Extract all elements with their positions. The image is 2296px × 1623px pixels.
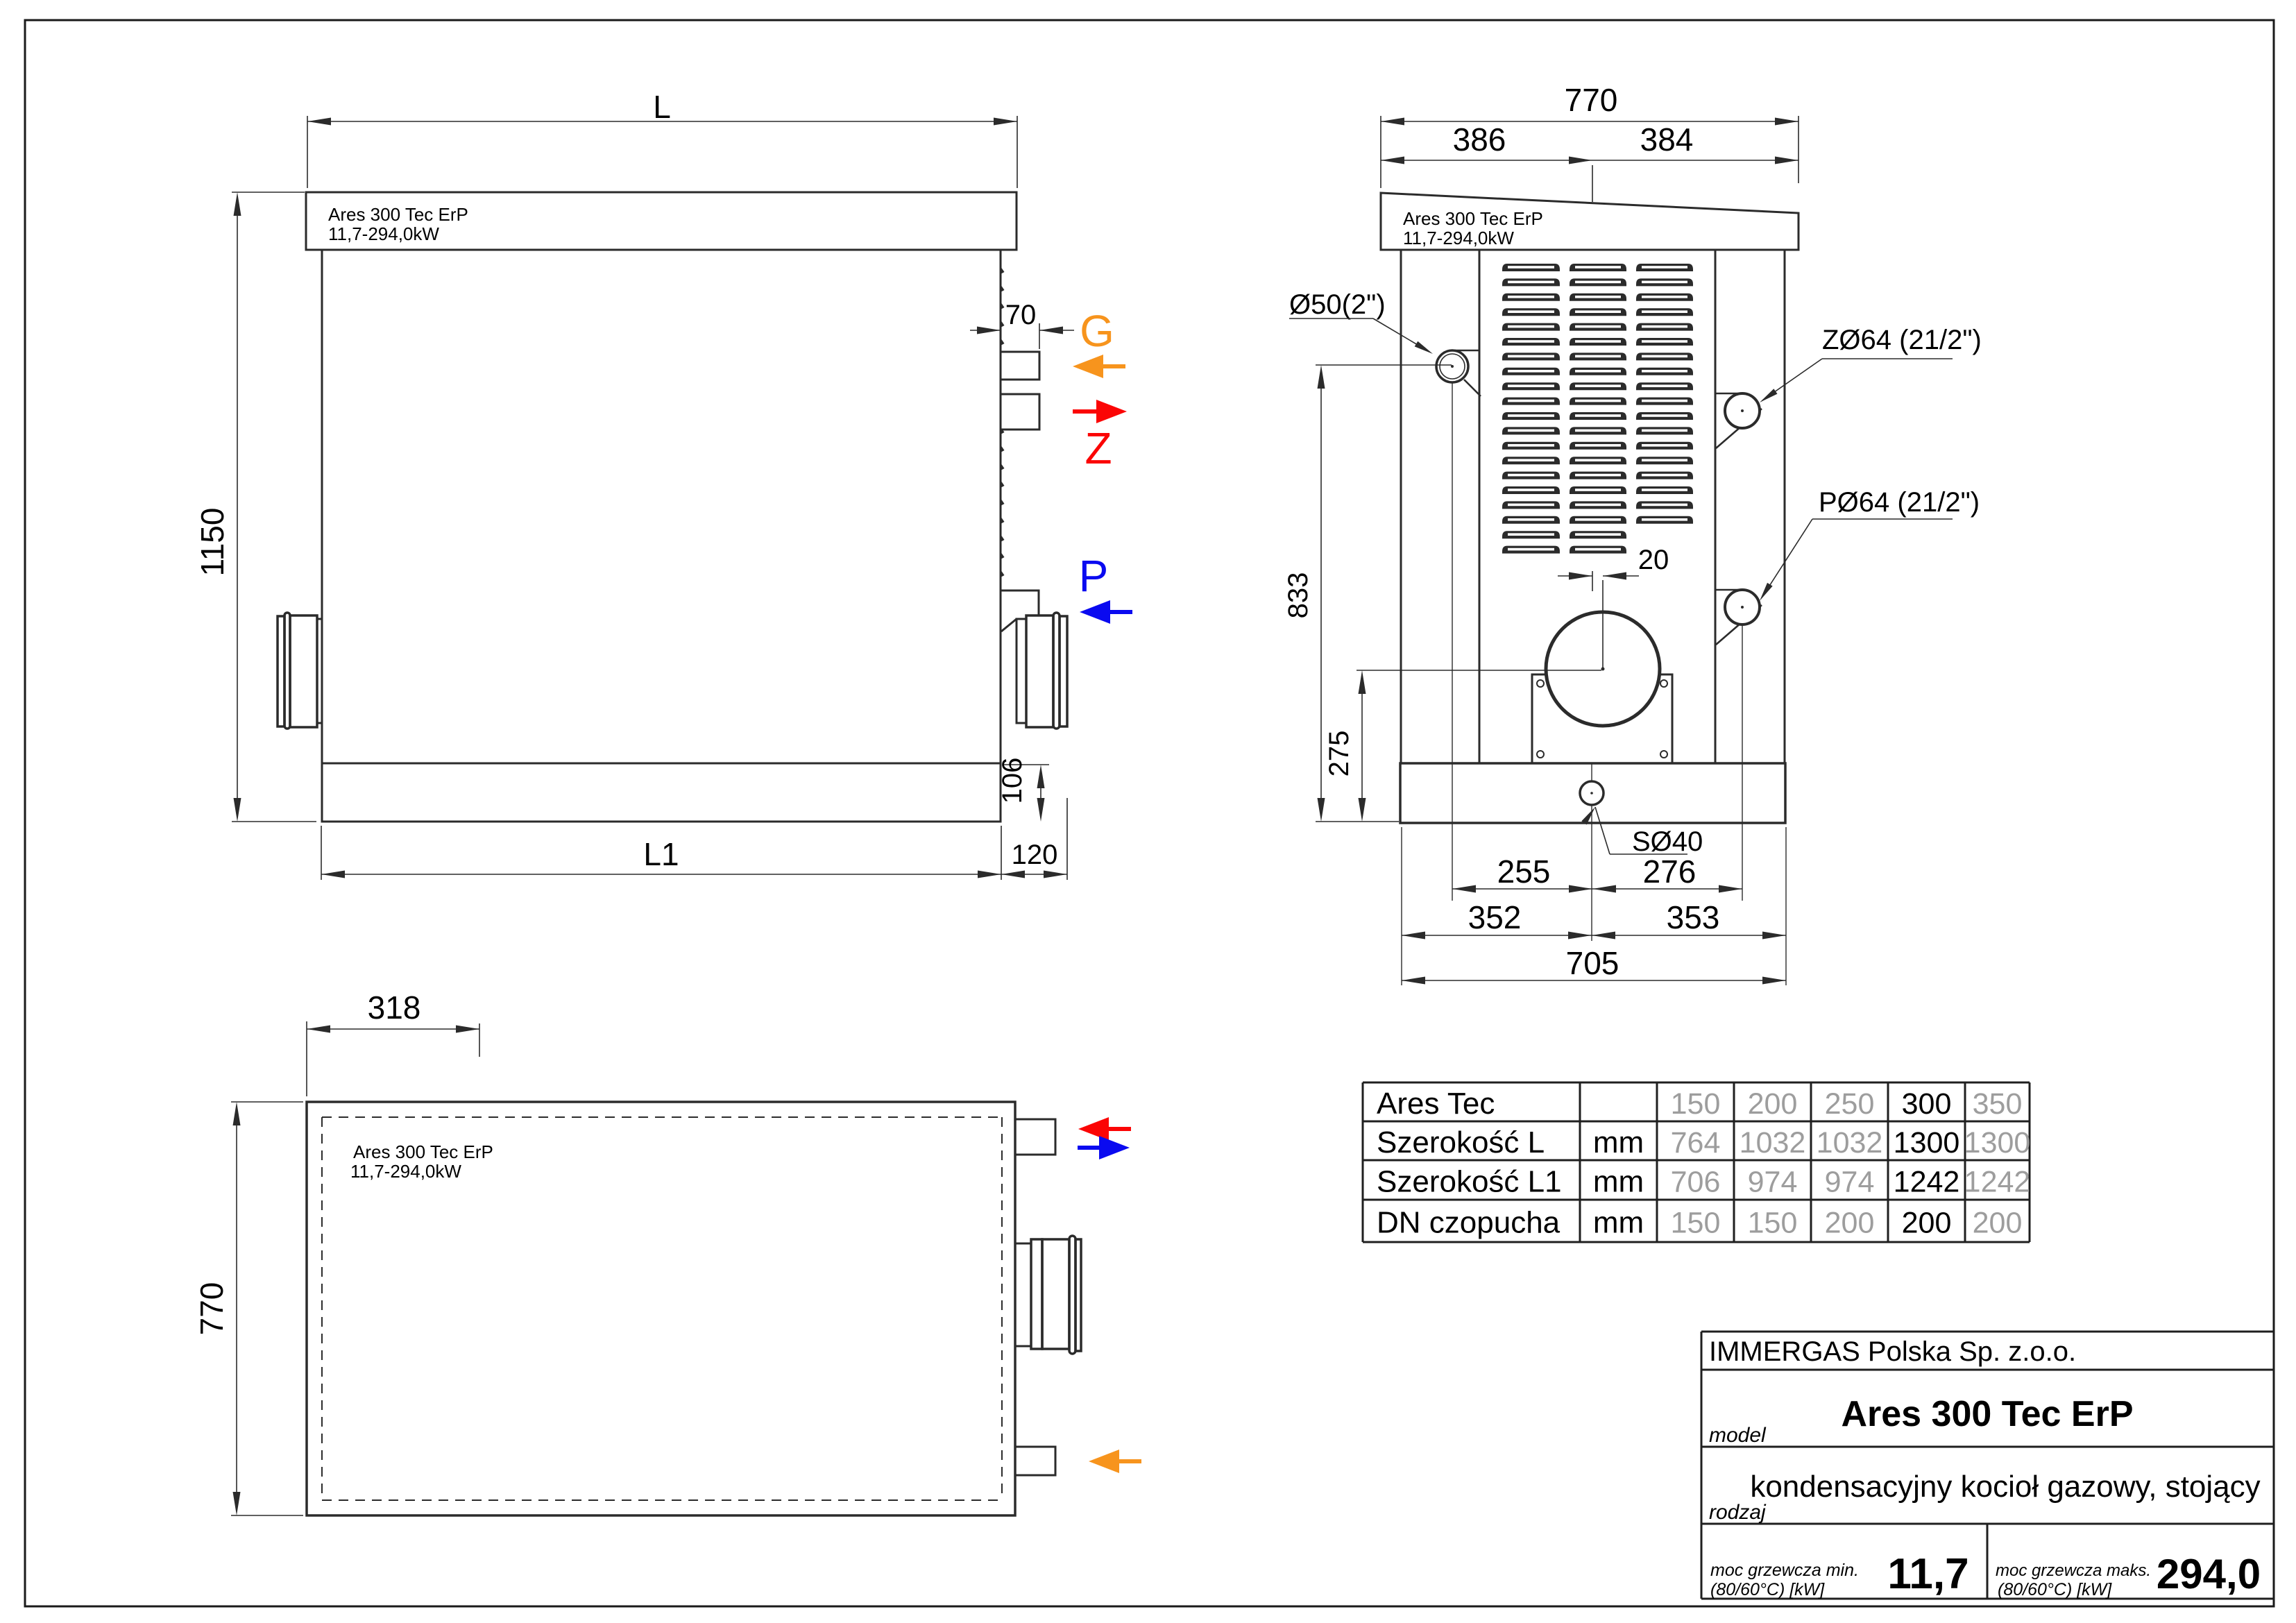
svg-text:Ares 300 Tec ErP: Ares 300 Tec ErP	[328, 204, 468, 225]
svg-text:386: 386	[1453, 121, 1506, 158]
svg-text:350: 350	[1973, 1087, 2023, 1121]
svg-text:106: 106	[997, 758, 1028, 804]
svg-text:352: 352	[1468, 899, 1522, 935]
svg-text:SØ40: SØ40	[1632, 826, 1703, 857]
svg-text:Ø50(2"): Ø50(2")	[1289, 289, 1386, 320]
svg-text:770: 770	[1565, 82, 1618, 118]
svg-text:150: 150	[1748, 1207, 1798, 1240]
svg-text:G: G	[1080, 306, 1114, 356]
svg-text:1242: 1242	[1964, 1166, 2031, 1199]
svg-text:833: 833	[1283, 572, 1313, 619]
svg-text:1300: 1300	[1964, 1126, 2031, 1159]
svg-text:mm: mm	[1593, 1165, 1644, 1199]
svg-text:150: 150	[1671, 1087, 1721, 1121]
svg-text:P: P	[1079, 551, 1109, 601]
svg-text:Szerokość L: Szerokość L	[1377, 1125, 1545, 1159]
svg-text:L1: L1	[643, 836, 679, 872]
svg-text:L: L	[653, 89, 671, 125]
svg-text:276: 276	[1643, 853, 1697, 890]
svg-text:1150: 1150	[194, 508, 230, 577]
svg-text:11,7-294,0kW: 11,7-294,0kW	[350, 1161, 461, 1182]
svg-text:275: 275	[1324, 731, 1354, 777]
svg-text:200: 200	[1825, 1207, 1875, 1240]
svg-text:70: 70	[1005, 300, 1037, 330]
svg-text:11,7-294,0kW: 11,7-294,0kW	[328, 223, 439, 244]
svg-text:Ares Tec: Ares Tec	[1377, 1087, 1495, 1121]
svg-text:200: 200	[1748, 1087, 1798, 1121]
svg-text:384: 384	[1640, 121, 1694, 158]
svg-text:120: 120	[1012, 840, 1058, 870]
svg-text:706: 706	[1671, 1166, 1721, 1199]
svg-text:moc grzewcza maks.: moc grzewcza maks.	[1996, 1561, 2151, 1580]
svg-text:300: 300	[1902, 1087, 1952, 1121]
svg-text:705: 705	[1566, 945, 1619, 981]
svg-text:mm: mm	[1593, 1125, 1644, 1159]
svg-text:250: 250	[1825, 1087, 1875, 1121]
svg-text:764: 764	[1671, 1126, 1721, 1159]
svg-text:Z: Z	[1085, 423, 1112, 473]
svg-text:974: 974	[1825, 1166, 1875, 1199]
svg-text:150: 150	[1671, 1207, 1721, 1240]
svg-text:IMMERGAS Polska Sp. z.o.o.: IMMERGAS Polska Sp. z.o.o.	[1709, 1336, 2076, 1367]
svg-text:200: 200	[1902, 1207, 1952, 1240]
svg-text:974: 974	[1748, 1166, 1798, 1199]
svg-text:318: 318	[368, 989, 421, 1026]
svg-text:11,7-294,0kW: 11,7-294,0kW	[1403, 228, 1514, 248]
svg-text:ZØ64 (21/2"): ZØ64 (21/2")	[1822, 325, 1982, 355]
svg-text:DN czopucha: DN czopucha	[1377, 1206, 1561, 1240]
svg-text:1032: 1032	[1817, 1126, 1883, 1159]
svg-text:(80/60°C) [kW]: (80/60°C) [kW]	[1710, 1580, 1825, 1599]
svg-text:rodzaj: rodzaj	[1709, 1501, 1767, 1524]
svg-text:11,7: 11,7	[1887, 1550, 1968, 1598]
svg-text:Szerokość L1: Szerokość L1	[1377, 1165, 1562, 1199]
svg-text:1300: 1300	[1894, 1126, 1960, 1159]
svg-text:20: 20	[1638, 545, 1669, 575]
svg-text:Ares 300 Tec ErP: Ares 300 Tec ErP	[1403, 208, 1543, 229]
svg-text:294,0: 294,0	[2157, 1551, 2261, 1597]
svg-text:Ares 300 Tec ErP: Ares 300 Tec ErP	[1841, 1394, 2133, 1434]
svg-text:353: 353	[1667, 899, 1720, 935]
svg-text:1032: 1032	[1740, 1126, 1806, 1159]
svg-text:1242: 1242	[1894, 1166, 1960, 1199]
svg-text:PØ64 (21/2"): PØ64 (21/2")	[1819, 487, 1980, 518]
svg-text:Ares 300 Tec ErP: Ares 300 Tec ErP	[353, 1141, 493, 1162]
svg-text:model: model	[1709, 1424, 1767, 1447]
svg-text:255: 255	[1497, 853, 1551, 890]
svg-text:moc grzewcza min.: moc grzewcza min.	[1710, 1561, 1859, 1580]
svg-text:(80/60°C) [kW]: (80/60°C) [kW]	[1998, 1580, 2112, 1599]
svg-text:200: 200	[1973, 1207, 2023, 1240]
svg-text:kondensacyjny kocioł gazowy, s: kondensacyjny kocioł gazowy, stojący	[1750, 1470, 2260, 1504]
svg-text:mm: mm	[1593, 1206, 1644, 1240]
svg-text:770: 770	[194, 1282, 230, 1336]
